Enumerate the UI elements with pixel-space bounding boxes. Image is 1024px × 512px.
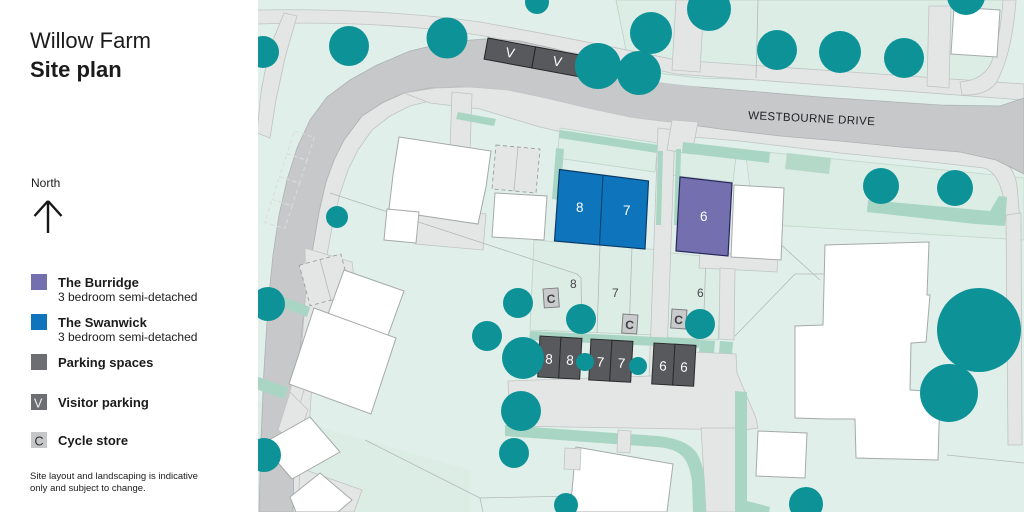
svg-text:7: 7 (617, 356, 625, 371)
svg-text:Site layout and landscaping is: Site layout and landscaping is indicativ… (30, 471, 198, 482)
svg-text:8: 8 (545, 351, 553, 366)
svg-text:Parking spaces: Parking spaces (58, 355, 153, 370)
svg-text:8: 8 (576, 200, 584, 215)
svg-text:C: C (35, 435, 44, 449)
svg-text:3 bedroom semi-detached: 3 bedroom semi-detached (58, 290, 197, 304)
svg-text:6: 6 (659, 358, 667, 373)
svg-text:Site plan: Site plan (30, 57, 122, 82)
svg-text:7: 7 (596, 354, 604, 369)
svg-text:The Burridge: The Burridge (58, 275, 139, 290)
svg-text:7: 7 (623, 203, 631, 218)
svg-text:C: C (546, 292, 556, 307)
svg-text:8: 8 (566, 353, 574, 368)
svg-text:V: V (34, 397, 43, 411)
svg-text:8: 8 (570, 277, 577, 291)
svg-text:6: 6 (680, 360, 688, 375)
svg-text:6: 6 (697, 286, 704, 300)
svg-text:The Swanwick: The Swanwick (58, 315, 148, 330)
svg-text:6: 6 (700, 209, 708, 224)
svg-text:C: C (625, 318, 635, 333)
svg-text:only and subject to change.: only and subject to change. (30, 483, 146, 494)
svg-text:Cycle store: Cycle store (58, 433, 128, 448)
svg-text:Willow Farm: Willow Farm (30, 28, 151, 53)
svg-text:North: North (31, 176, 60, 190)
svg-text:7: 7 (612, 286, 619, 300)
svg-text:C: C (674, 313, 684, 328)
svg-text:3 bedroom semi-detached: 3 bedroom semi-detached (58, 330, 197, 344)
svg-text:Visitor parking: Visitor parking (58, 395, 149, 410)
